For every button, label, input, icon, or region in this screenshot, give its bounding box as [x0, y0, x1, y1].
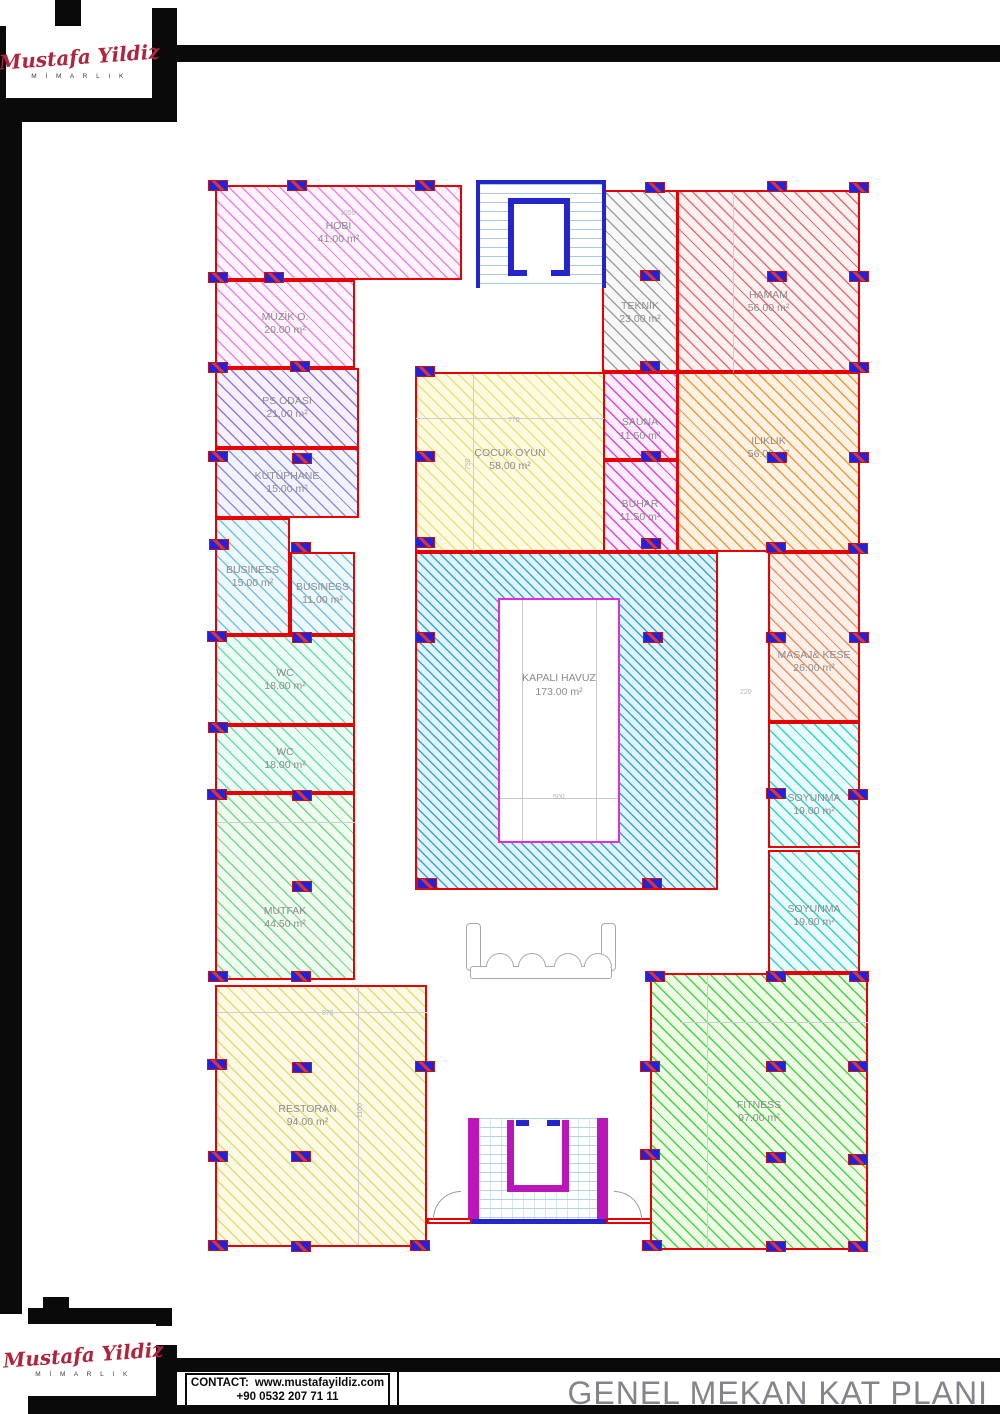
structural-column [640, 1149, 660, 1160]
dimension-label: 750 [465, 458, 472, 470]
room-label-mutfak: MUTFAK44.50 m² [217, 904, 353, 930]
room-label-soyunma-2: SOYUNMA19.00 m² [770, 903, 858, 929]
structural-column [291, 542, 311, 553]
structural-column [292, 790, 312, 801]
room-business-11: BUSINESS11.00 m² [290, 552, 355, 635]
partition-line [473, 374, 474, 551]
room-label-kutuphane: KÜTÜPHANE15.00 m² [217, 470, 357, 496]
pool: KAPALI HAVUZ 173.00 m² [498, 598, 620, 843]
room-wc-1: WC18.00 m² [215, 635, 355, 725]
room-wc-2: WC18.00 m² [215, 725, 355, 793]
room-label-wc-1: WC18.00 m² [217, 667, 353, 693]
structural-column [415, 366, 435, 377]
room-restoran: RESTORAN94.00 m² [215, 985, 427, 1247]
room-sauna: SAUNA11.50 m² [602, 372, 678, 460]
structural-column [849, 452, 869, 463]
room-business-15: BUSINESS15.00 m² [215, 518, 290, 635]
structural-column [766, 1061, 786, 1072]
structural-column [291, 1241, 311, 1252]
structural-column [290, 361, 310, 372]
structural-column [415, 180, 435, 191]
dimension-label: 875 [322, 1010, 334, 1017]
stair-wall [597, 1118, 608, 1224]
dimension-label: 770 [508, 417, 520, 424]
room-label-business-15: BUSINESS15.00 m² [217, 563, 288, 589]
structural-column [287, 180, 307, 191]
room-label-hamam: HAMAM56.00 m² [679, 289, 858, 315]
structural-column [208, 180, 228, 191]
structural-column [415, 632, 435, 643]
structural-column [645, 971, 665, 982]
pool-name: KAPALI HAVUZ [490, 672, 628, 686]
structural-column [642, 878, 662, 889]
structural-column [848, 1241, 868, 1252]
structural-column [641, 538, 661, 549]
structural-column [209, 539, 229, 550]
structural-column [207, 789, 227, 800]
sofa-cushion [518, 953, 546, 967]
structural-column [767, 452, 787, 463]
room-cocuk-oyun: ÇOCUK OYUN58.00 m² [415, 372, 605, 552]
dimension-label: 1055 [340, 210, 356, 217]
room-label-masaj-kese: MASAJ& KESE26.00 m² [770, 649, 858, 675]
partition-line [217, 822, 355, 823]
structural-column [292, 881, 312, 892]
structural-column [767, 181, 787, 192]
structural-column [640, 361, 660, 372]
room-hobi: HOBİ41.00 m² [215, 185, 462, 280]
partition-line [680, 1022, 868, 1023]
structural-column [207, 1059, 227, 1070]
structural-column [415, 537, 435, 548]
structural-column [640, 1061, 660, 1072]
stair-base-wall [468, 1219, 608, 1224]
structural-column [641, 451, 661, 462]
structural-column [410, 1240, 430, 1251]
structural-column [849, 971, 869, 982]
staircase-top [476, 180, 606, 288]
room-label-fitness: FITNESS97.00 m² [652, 1098, 866, 1124]
structural-column [292, 1062, 312, 1073]
structural-column [264, 272, 284, 283]
structural-column [417, 878, 437, 889]
sofa-cushion [486, 953, 514, 967]
structural-column [848, 1154, 868, 1165]
structural-column [208, 722, 228, 733]
room-teknik: TEKNİK23.00 m² [602, 190, 678, 372]
contact-website: www.mustafayildiz.com [255, 1376, 384, 1390]
structural-column [208, 1240, 228, 1251]
room-label-restoran: RESTORAN94.00 m² [190, 1103, 425, 1129]
structural-column [208, 272, 228, 283]
structural-column [643, 632, 663, 643]
sofa-arm [466, 923, 481, 971]
pool-lane-line [522, 600, 523, 841]
room-label-wc-2: WC18.00 m² [217, 746, 353, 772]
room-label-muzik-odasi: MÜZİK O.20.00 m² [217, 311, 353, 337]
structural-column [642, 1240, 662, 1251]
room-label-teknik: TEKNİK23.00 m² [604, 300, 676, 326]
structural-column [292, 453, 312, 464]
structural-column [766, 788, 786, 799]
structural-column [849, 362, 869, 373]
dimension-label: 220 [740, 689, 752, 696]
room-label-business-11: BUSINESS11.00 m² [292, 580, 353, 606]
structural-column [766, 542, 786, 553]
room-label-ps-odasi: PS ODASI21.00 m² [217, 395, 357, 421]
structural-column [766, 1241, 786, 1252]
structural-column [415, 1061, 435, 1072]
structural-column [291, 1151, 311, 1162]
structural-column [292, 632, 312, 643]
structural-column [208, 971, 228, 982]
door-swing-arc [614, 1191, 642, 1219]
room-label-sauna: SAUNA11.50 m² [604, 416, 676, 442]
contact-phone: +90 0532 207 71 11 [236, 1390, 338, 1404]
sofa-cushion [554, 953, 582, 967]
room-muzik-odasi: MÜZİK O.20.00 m² [215, 280, 355, 368]
pool-lane-line [596, 600, 597, 841]
room-label-cocuk-oyun: ÇOCUK OYUN58.00 m² [417, 447, 603, 473]
door-swing-arc [433, 1191, 461, 1219]
structural-column [640, 270, 660, 281]
room-fitness: FITNESS97.00 m² [650, 973, 868, 1250]
floor-plan-canvas: KAPALI HAVUZ 173.00 m² HOBİ41.00 m²MÜZİK… [0, 0, 1000, 1414]
structural-column [208, 362, 228, 373]
structural-column [208, 1151, 228, 1162]
contact-line: CONTACT: www.mustafayildiz.com [191, 1376, 384, 1390]
room-label-buhar: BUHAR11.50 m² [604, 498, 676, 524]
staircase-bottom [468, 1118, 608, 1224]
structural-column [767, 271, 787, 282]
structural-column [848, 543, 868, 554]
structural-column [849, 182, 869, 193]
structural-column [848, 789, 868, 800]
structural-column [849, 271, 869, 282]
stair-wall [468, 1118, 479, 1224]
contact-box: CONTACT: www.mustafayildiz.com +90 0532 … [185, 1373, 390, 1407]
room-soyunma-2: SOYUNMA19.00 m² [768, 850, 860, 973]
structural-column [291, 971, 311, 982]
room-ps-odasi: PS ODASI21.00 m² [215, 368, 359, 448]
dimension-label: 500 [553, 794, 565, 801]
structural-column [766, 971, 786, 982]
partition-line [733, 192, 734, 373]
contact-label: CONTACT: [191, 1376, 249, 1390]
partition-line [707, 975, 708, 1247]
structural-column [848, 1061, 868, 1072]
structural-column [415, 451, 435, 462]
room-label-hobi: HOBİ41.00 m² [217, 219, 460, 245]
dimension-label: 1100 [357, 1103, 364, 1118]
sofa-base [470, 966, 612, 979]
room-kutuphane: KÜTÜPHANE15.00 m² [215, 448, 359, 518]
pool-label: KAPALI HAVUZ 173.00 m² [490, 672, 628, 699]
room-soyunma-1: SOYUNMA19.00 m² [768, 722, 860, 848]
plan-title: GENEL MEKAN KAT PLANI [567, 1375, 988, 1412]
elevator-shaft-bottom [507, 1120, 569, 1192]
footer-divider [397, 1372, 399, 1405]
pool-area: 173.00 m² [490, 686, 628, 700]
structural-column [849, 632, 869, 643]
structural-column [766, 1152, 786, 1163]
structural-column [207, 631, 227, 642]
elevator-shaft-top [508, 198, 570, 276]
structural-column [766, 632, 786, 643]
floor-plan-page: Mustafa Yildiz M İ M A R L I K Mustafa Y… [0, 0, 1000, 1414]
structural-column [645, 182, 665, 193]
structural-column [208, 451, 228, 462]
sofa-seating [466, 923, 616, 979]
room-buhar: BUHAR11.50 m² [602, 460, 678, 552]
